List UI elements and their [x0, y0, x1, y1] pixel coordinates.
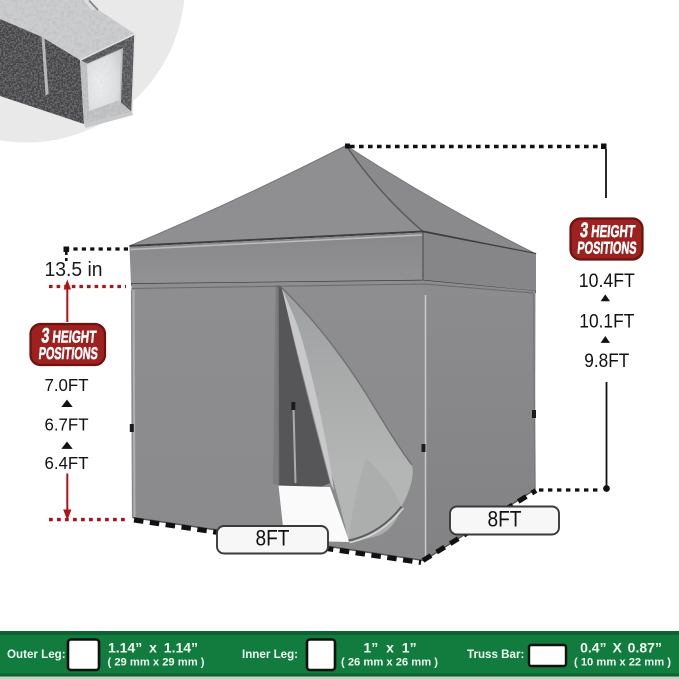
svg-text:( 10 mm x 22 mm ): ( 10 mm x 22 mm )	[574, 657, 671, 669]
svg-text:10.4FT: 10.4FT	[579, 270, 635, 292]
svg-text:Inner Leg:: Inner Leg:	[242, 648, 298, 661]
svg-text:Truss Bar:: Truss Bar:	[467, 648, 524, 661]
svg-text:1” x 1”: 1” x 1”	[363, 640, 416, 656]
svg-text:POSITIONS: POSITIONS	[38, 345, 99, 364]
svg-text:7.0FT: 7.0FT	[45, 375, 89, 395]
svg-text:( 29 mm x 29 mm ): ( 29 mm x 29 mm )	[107, 657, 204, 669]
svg-text:0.4” X 0.87”: 0.4” X 0.87”	[580, 640, 662, 656]
svg-text:POSITIONS: POSITIONS	[576, 239, 637, 258]
svg-text:8FT: 8FT	[256, 526, 290, 551]
svg-text:1.14” x 1.14”: 1.14” x 1.14”	[108, 640, 198, 656]
svg-text:10.1FT: 10.1FT	[579, 311, 634, 333]
svg-text:13.5 in: 13.5 in	[45, 259, 103, 281]
svg-text:( 26 mm x 26 mm ): ( 26 mm x 26 mm )	[341, 657, 438, 669]
svg-text:8FT: 8FT	[488, 507, 522, 532]
svg-text:Outer Leg:: Outer Leg:	[7, 648, 66, 661]
svg-text:6.7FT: 6.7FT	[45, 415, 89, 435]
svg-text:6.4FT: 6.4FT	[45, 453, 89, 473]
svg-text:9.8FT: 9.8FT	[584, 350, 629, 372]
